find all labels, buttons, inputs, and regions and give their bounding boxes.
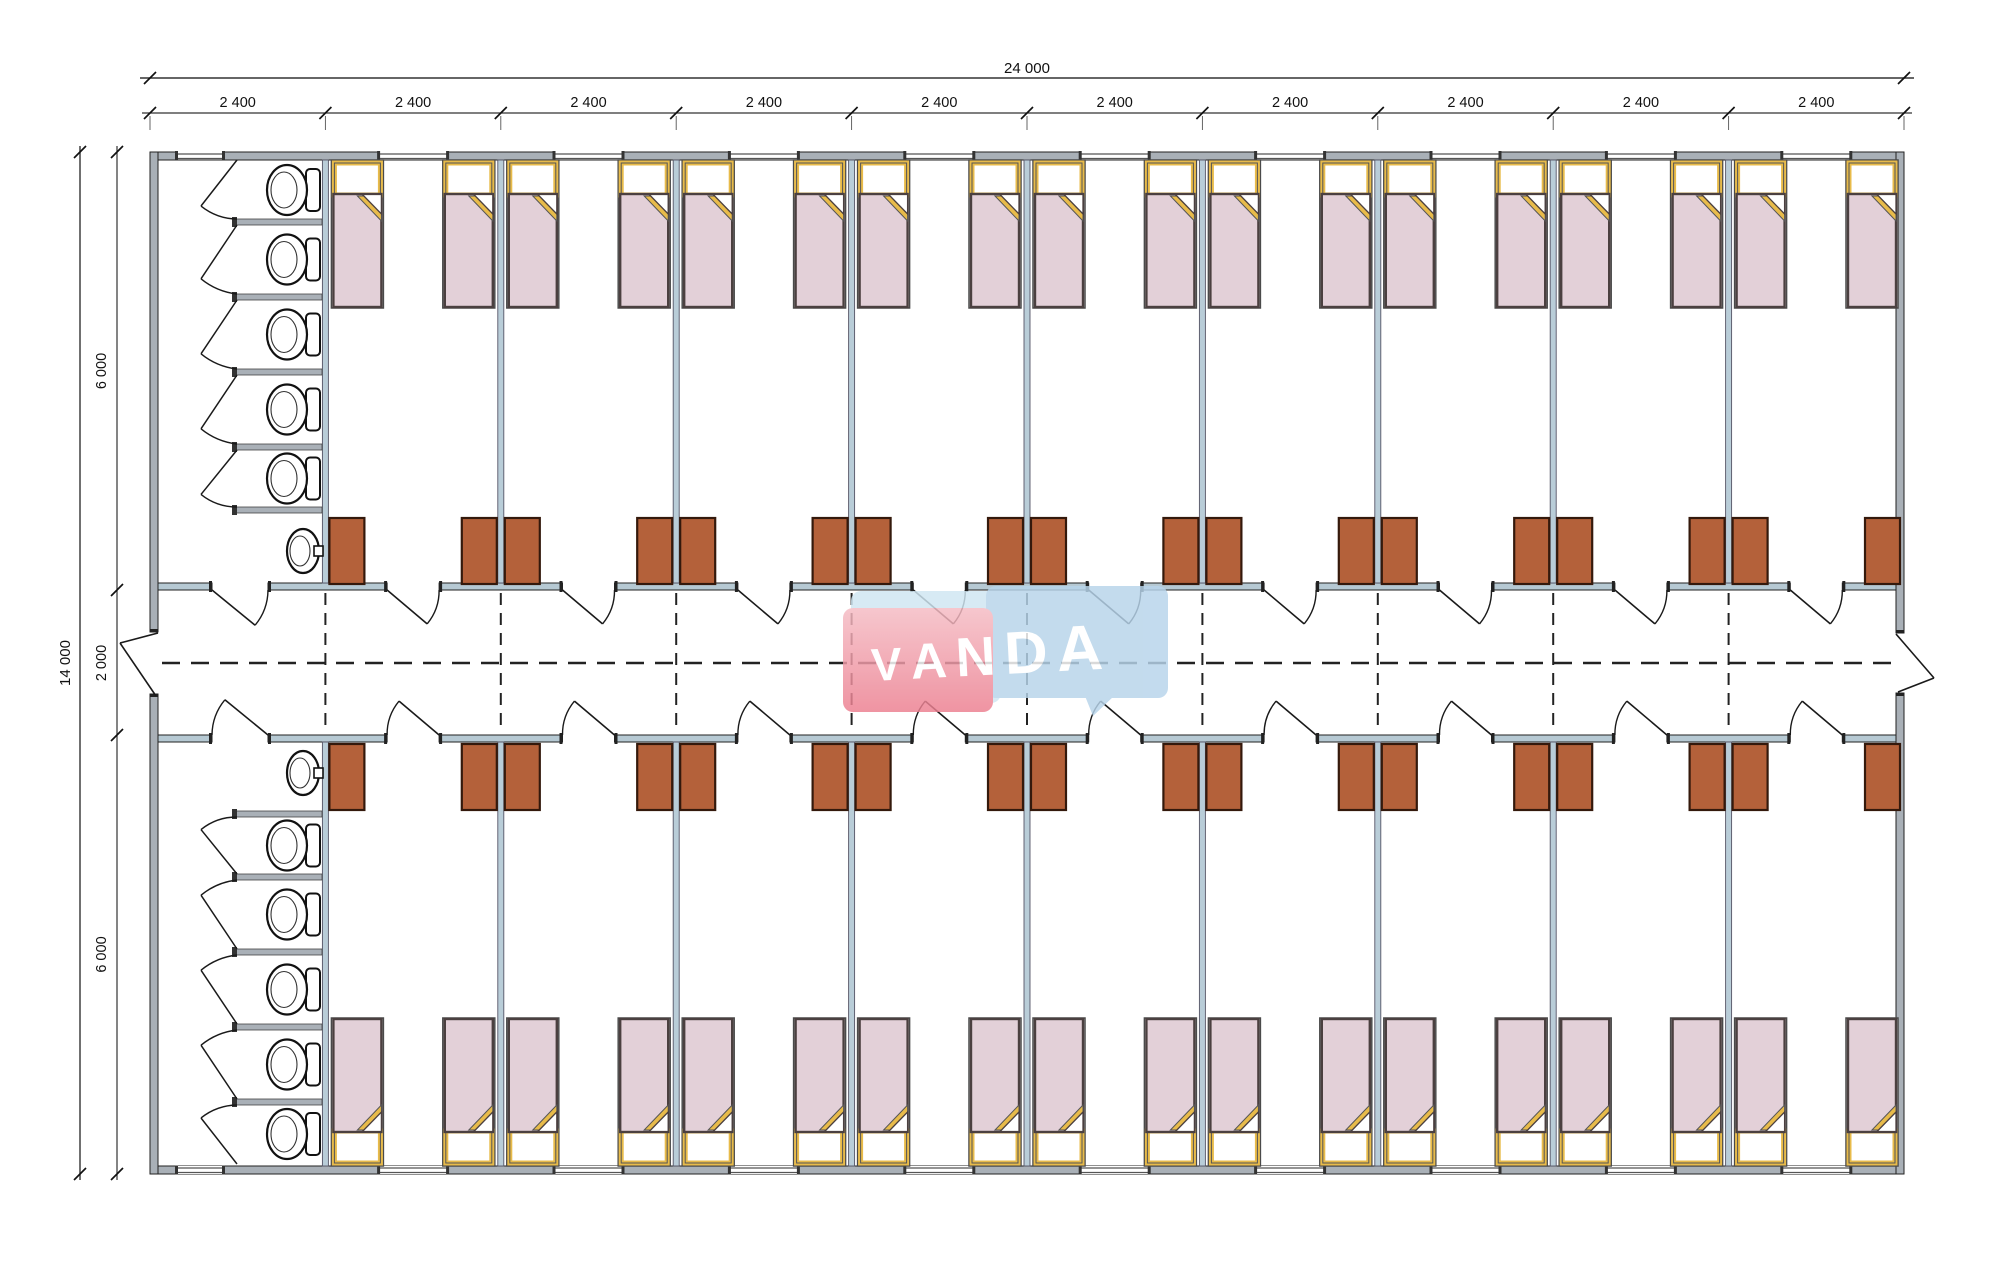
bed <box>1033 1018 1085 1166</box>
bed <box>858 160 910 308</box>
stall-door-swing <box>201 955 237 970</box>
window-jamb <box>1674 1166 1677 1175</box>
entrance-door-leaf <box>1896 634 1934 678</box>
wardrobe <box>1031 518 1066 584</box>
bed <box>443 1018 495 1166</box>
bed <box>794 1018 846 1166</box>
door-swing <box>1830 590 1842 624</box>
stall-door-swing <box>201 880 237 895</box>
stall-wall <box>236 369 322 375</box>
stall-door-leaf <box>201 160 237 206</box>
stall-door-swing <box>201 817 237 830</box>
door-swing <box>562 701 574 735</box>
partition-wall <box>322 742 328 1166</box>
bed <box>618 1018 670 1166</box>
wardrobe <box>1733 744 1768 810</box>
window-jamb <box>377 1166 380 1175</box>
window-jamb <box>1605 151 1608 160</box>
corridor-wall <box>268 735 387 742</box>
door-jamb <box>965 733 968 744</box>
door-jamb <box>1261 581 1264 592</box>
window-jamb <box>1780 1166 1783 1175</box>
bed <box>1559 1018 1611 1166</box>
door-jamb <box>1787 581 1790 592</box>
floor-plan-canvas: 24 0002 4002 4002 4002 4002 4002 4002 40… <box>0 0 2000 1285</box>
bed <box>969 160 1021 308</box>
door-swing <box>1480 590 1492 624</box>
bed <box>1384 160 1436 308</box>
wardrobe <box>1163 518 1198 584</box>
door-swing <box>1790 701 1802 735</box>
window-jamb <box>1079 151 1082 160</box>
door-jamb <box>735 581 738 592</box>
stall-door-leaf <box>201 1045 237 1099</box>
stall-door-leaf <box>201 450 237 494</box>
window-jamb <box>972 1166 975 1175</box>
door-swing <box>427 590 439 624</box>
wardrobe <box>637 744 672 810</box>
wardrobe <box>813 744 848 810</box>
corridor-wall <box>1842 735 1896 742</box>
stall-door-swing <box>201 354 237 369</box>
window-jamb <box>797 151 800 160</box>
wardrobe <box>1339 744 1374 810</box>
bed <box>1144 1018 1196 1166</box>
door-leaf <box>387 590 427 624</box>
window-jamb <box>1430 1166 1433 1175</box>
wardrobe <box>1557 518 1592 584</box>
bed <box>1208 1018 1260 1166</box>
stall-wall <box>236 811 322 817</box>
wardrobe <box>505 744 540 810</box>
stall-wall <box>236 507 322 513</box>
stall-wall <box>236 219 322 225</box>
window-jamb <box>553 1166 556 1175</box>
wardrobe <box>813 518 848 584</box>
partition-wall <box>1726 160 1732 583</box>
washbasin-tap <box>314 546 323 556</box>
window-jamb <box>903 1166 906 1175</box>
stall-wall <box>236 444 322 450</box>
door-leaf <box>1264 590 1304 624</box>
corridor-wall <box>268 583 387 590</box>
wardrobe <box>637 518 672 584</box>
partition-wall <box>322 160 328 583</box>
bed <box>443 160 495 308</box>
window-jamb <box>1323 151 1326 160</box>
window-jamb <box>1430 151 1433 160</box>
window-jamb <box>377 151 380 160</box>
washbasin-tap <box>314 768 323 778</box>
wardrobe <box>329 518 364 584</box>
window-jamb <box>622 151 625 160</box>
door-leaf <box>399 701 439 735</box>
door-jamb <box>384 581 387 592</box>
wardrobe <box>1557 744 1592 810</box>
stall-wall <box>236 1024 322 1030</box>
window-jamb <box>1323 1166 1326 1175</box>
bed <box>507 160 559 308</box>
wardrobe <box>680 744 715 810</box>
corridor-wall <box>158 583 212 590</box>
window-jamb <box>797 1166 800 1175</box>
window-jamb <box>1499 1166 1502 1175</box>
corridor-wall <box>790 583 913 590</box>
partition-wall <box>1024 160 1030 583</box>
partition-wall <box>1375 160 1381 583</box>
wardrobe <box>1382 518 1417 584</box>
bed <box>682 160 734 308</box>
door-swing <box>1615 701 1627 735</box>
door-swing <box>1304 590 1316 624</box>
dim-label-bay: 2 400 <box>921 95 957 111</box>
door-leaf <box>738 590 778 624</box>
window-jamb <box>1148 1166 1151 1175</box>
window-jamb <box>1499 151 1502 160</box>
wardrobe <box>329 744 364 810</box>
window-jamb <box>1674 151 1677 160</box>
partition-wall <box>1550 160 1556 583</box>
bed <box>1559 160 1611 308</box>
dim-label-total-height: 14 000 <box>57 640 74 686</box>
partition-wall <box>1726 742 1732 1166</box>
bed <box>1208 160 1260 308</box>
partition-wall <box>849 742 855 1166</box>
corridor-wall <box>1316 583 1439 590</box>
entrance-door-leaf <box>120 633 158 643</box>
window-jamb <box>728 151 731 160</box>
window-jamb <box>175 151 178 160</box>
door-jamb <box>615 733 618 744</box>
door-jamb <box>1842 733 1845 744</box>
wardrobe <box>1865 744 1900 810</box>
partition-wall <box>1375 742 1381 1166</box>
window-jamb <box>903 151 906 160</box>
outer-wall-left <box>150 152 158 632</box>
stall-door-leaf <box>201 830 237 874</box>
door-jamb <box>150 629 158 632</box>
window-jamb <box>222 151 225 160</box>
bed <box>331 1018 383 1166</box>
door-leaf <box>212 590 255 625</box>
stall-door-swing <box>201 1030 237 1045</box>
corridor-wall <box>1316 735 1439 742</box>
bed <box>794 160 846 308</box>
bed <box>1846 160 1898 308</box>
wardrobe <box>856 744 891 810</box>
bed <box>858 1018 910 1166</box>
door-leaf <box>1627 701 1667 735</box>
bed <box>1495 160 1547 308</box>
door-jamb <box>910 581 913 592</box>
stall-door-leaf <box>201 300 237 354</box>
bed <box>1671 160 1723 308</box>
door-leaf <box>750 701 790 735</box>
window-jamb <box>446 1166 449 1175</box>
window-jamb <box>1849 1166 1852 1175</box>
window-jamb <box>553 151 556 160</box>
wardrobe <box>1514 518 1549 584</box>
dim-label-room-depth: 6 000 <box>94 936 110 972</box>
wardrobe <box>1339 518 1374 584</box>
door-swing <box>255 590 268 625</box>
corridor-wall <box>1492 735 1615 742</box>
dim-label-room-depth: 6 000 <box>94 353 110 389</box>
corridor-wall <box>965 735 1088 742</box>
wardrobe <box>680 518 715 584</box>
corridor-wall <box>158 735 212 742</box>
wardrobe <box>856 518 891 584</box>
door-jamb <box>1612 581 1615 592</box>
door-leaf <box>1276 701 1316 735</box>
outer-wall-left <box>150 694 158 1174</box>
partition-wall <box>498 742 504 1166</box>
corridor-wall <box>615 583 738 590</box>
door-leaf <box>1790 590 1830 624</box>
door-jamb <box>1667 733 1670 744</box>
corridor-wall <box>1141 735 1264 742</box>
vanda-watermark: VANDA <box>843 586 1168 716</box>
door-jamb <box>1141 733 1144 744</box>
partition-wall <box>673 742 679 1166</box>
entrance-door-leaf <box>120 643 156 696</box>
dim-label-bay: 2 400 <box>1623 95 1659 111</box>
door-leaf <box>1802 701 1842 735</box>
window-jamb <box>446 151 449 160</box>
partition-wall <box>849 160 855 583</box>
bed <box>1144 160 1196 308</box>
dim-label-bay: 2 400 <box>1798 95 1834 111</box>
dim-label-bay: 2 400 <box>1272 95 1308 111</box>
partition-wall <box>673 160 679 583</box>
corridor-wall <box>1492 583 1615 590</box>
wardrobe <box>988 518 1023 584</box>
dim-label-bay: 2 400 <box>746 95 782 111</box>
door-leaf <box>1101 701 1141 735</box>
door-swing <box>1264 701 1276 735</box>
partition-wall <box>1199 742 1205 1166</box>
entrance-door-leaf <box>1898 678 1934 692</box>
bed <box>331 160 383 308</box>
door-leaf <box>563 590 603 624</box>
door-jamb <box>1492 733 1495 744</box>
bed <box>507 1018 559 1166</box>
wardrobe <box>462 518 497 584</box>
door-jamb <box>268 733 271 744</box>
bed <box>682 1018 734 1166</box>
window-jamb <box>728 1166 731 1175</box>
door-jamb <box>439 733 442 744</box>
dim-label-bay: 2 400 <box>395 95 431 111</box>
stall-door-leaf <box>201 895 237 949</box>
window-jamb <box>1079 1166 1082 1175</box>
door-swing <box>387 701 399 735</box>
window-jamb <box>1780 151 1783 160</box>
corridor-wall <box>1667 583 1790 590</box>
door-jamb <box>1316 733 1319 744</box>
door-leaf <box>574 701 614 735</box>
stall-door-leaf <box>201 225 237 279</box>
wardrobe <box>1031 744 1066 810</box>
corridor-wall <box>1667 735 1790 742</box>
floor-plan-svg: 24 0002 4002 4002 4002 4002 4002 4002 40… <box>0 0 2000 1285</box>
wardrobe <box>1206 744 1241 810</box>
wardrobe <box>1690 744 1725 810</box>
partition-wall <box>1550 742 1556 1166</box>
stall-wall <box>236 874 322 880</box>
stall-door-leaf <box>201 1118 237 1164</box>
door-swing <box>778 590 790 624</box>
door-swing <box>212 700 225 735</box>
stall-door-swing <box>201 429 237 444</box>
door-leaf <box>1440 590 1480 624</box>
corridor-wall <box>439 735 562 742</box>
wardrobe <box>1865 518 1900 584</box>
dim-label-bay: 2 400 <box>1447 95 1483 111</box>
wardrobe <box>1163 744 1198 810</box>
wardrobe <box>462 744 497 810</box>
wardrobe <box>1206 518 1241 584</box>
dim-label-bay: 2 400 <box>1097 95 1133 111</box>
bed <box>618 160 670 308</box>
window-jamb <box>622 1166 625 1175</box>
bed <box>1671 1018 1723 1166</box>
corridor-wall <box>615 735 738 742</box>
bed <box>1495 1018 1547 1166</box>
dim-label-total-width: 24 000 <box>1004 60 1050 77</box>
dim-label-bay: 2 400 <box>220 95 256 111</box>
door-leaf <box>225 700 268 735</box>
stall-door-swing <box>201 1105 237 1118</box>
stall-door-swing <box>201 279 237 294</box>
wardrobe <box>1382 744 1417 810</box>
wardrobe <box>505 518 540 584</box>
stall-door-swing <box>201 494 237 507</box>
stall-wall <box>236 949 322 955</box>
window-jamb <box>1849 151 1852 160</box>
window-jamb <box>222 1166 225 1175</box>
door-swing <box>738 701 750 735</box>
wardrobe <box>1690 518 1725 584</box>
door-jamb <box>209 581 212 592</box>
window-jamb <box>175 1166 178 1175</box>
door-jamb <box>1896 693 1904 696</box>
stall-door-swing <box>201 206 237 219</box>
bed <box>1320 160 1372 308</box>
corridor-wall <box>790 735 913 742</box>
window-jamb <box>972 151 975 160</box>
bed <box>1735 1018 1787 1166</box>
door-leaf <box>1451 701 1491 735</box>
bed <box>1846 1018 1898 1166</box>
door-jamb <box>790 733 793 744</box>
window-jamb <box>1148 151 1151 160</box>
stall-wall <box>236 294 322 300</box>
bed <box>969 1018 1021 1166</box>
bed <box>1735 160 1787 308</box>
door-leaf <box>1615 590 1655 624</box>
dim-label-corridor: 2 000 <box>94 645 110 681</box>
partition-wall <box>1199 160 1205 583</box>
door-swing <box>1655 590 1667 624</box>
partition-wall <box>1024 742 1030 1166</box>
door-jamb <box>560 581 563 592</box>
bed <box>1384 1018 1436 1166</box>
stall-door-leaf <box>201 970 237 1024</box>
bed <box>1320 1018 1372 1166</box>
watermark-tail <box>1085 696 1114 716</box>
stall-wall <box>236 1099 322 1105</box>
door-jamb <box>1437 581 1440 592</box>
window-jamb <box>1254 151 1257 160</box>
door-jamb <box>1896 630 1904 633</box>
stall-door-leaf <box>201 375 237 429</box>
dim-label-bay: 2 400 <box>570 95 606 111</box>
window-jamb <box>1254 1166 1257 1175</box>
bed <box>1033 160 1085 308</box>
door-swing <box>603 590 615 624</box>
corridor-wall <box>439 583 562 590</box>
wardrobe <box>988 744 1023 810</box>
wardrobe <box>1514 744 1549 810</box>
window-jamb <box>1605 1166 1608 1175</box>
partition-wall <box>498 160 504 583</box>
wardrobe <box>1733 518 1768 584</box>
door-swing <box>1439 701 1451 735</box>
